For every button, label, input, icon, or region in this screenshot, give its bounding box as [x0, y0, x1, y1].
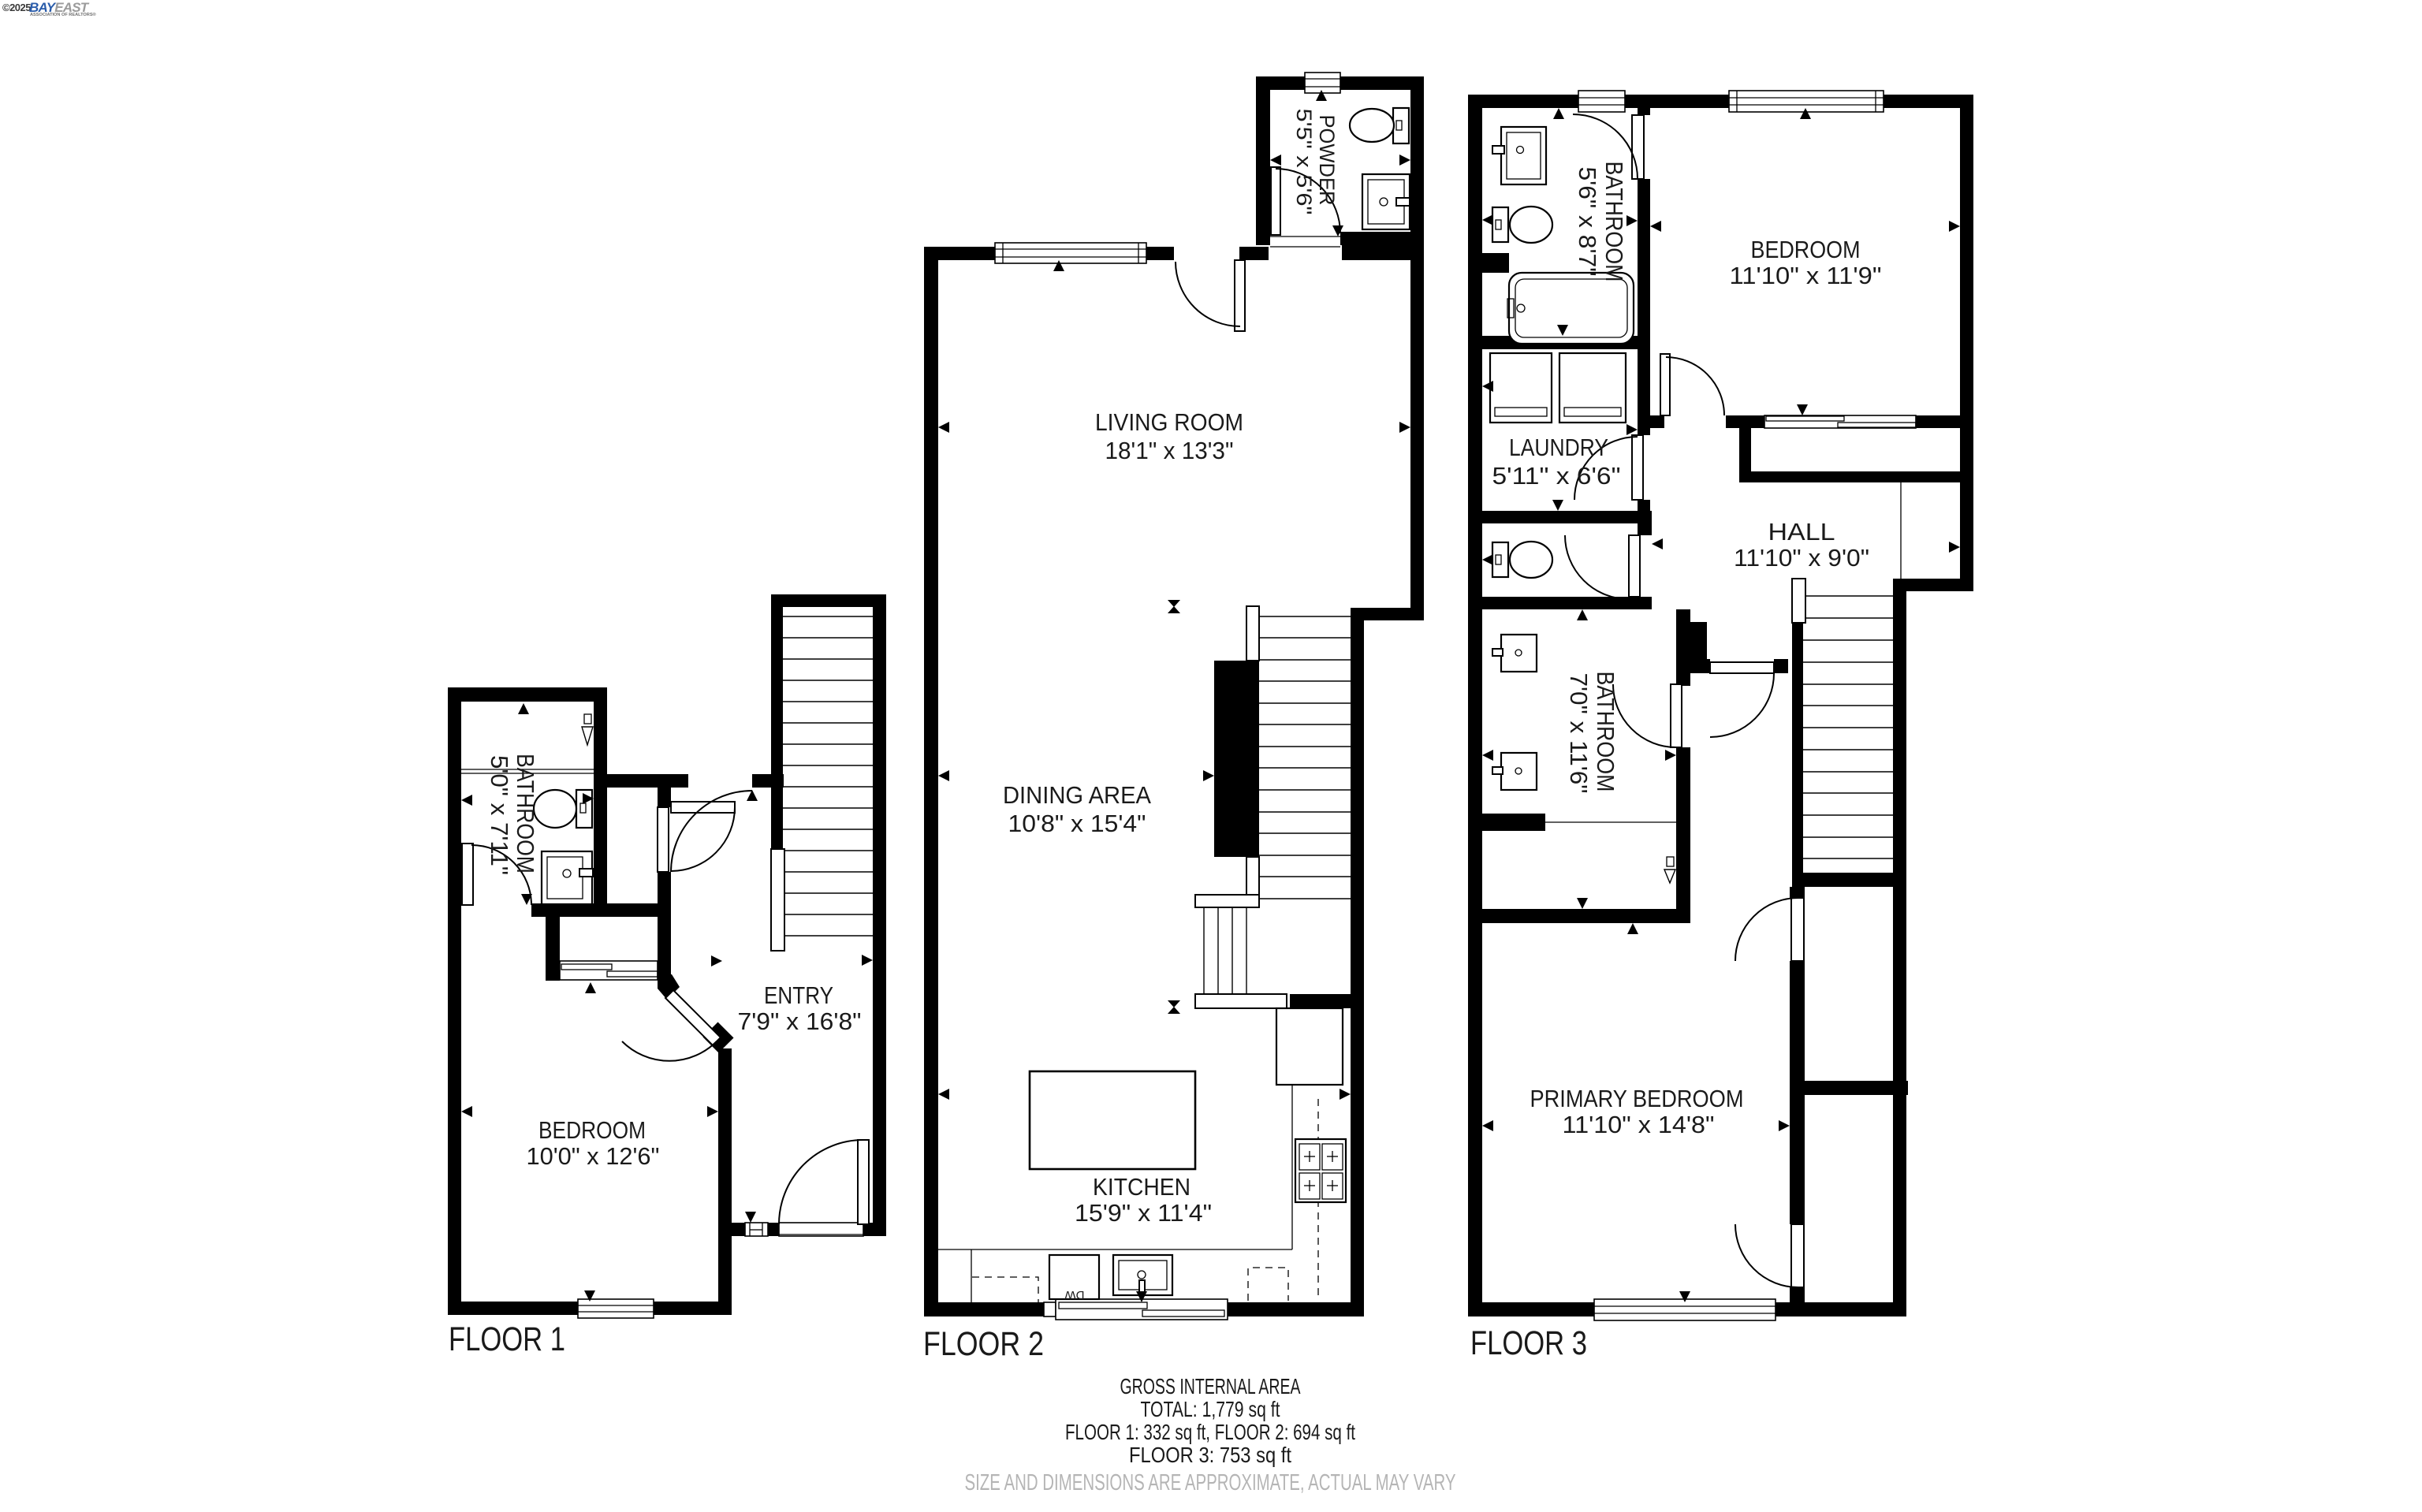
svg-text:LIVING ROOM: LIVING ROOM	[1095, 408, 1243, 436]
svg-text:KITCHEN: KITCHEN	[1093, 1173, 1191, 1201]
svg-text:FLOOR 3: 753 sq ft: FLOOR 3: 753 sq ft	[1129, 1443, 1291, 1467]
svg-text:DW: DW	[1064, 1288, 1085, 1302]
svg-text:11'10" x 9'0": 11'10" x 9'0"	[1734, 544, 1869, 572]
svg-text:7'0" x 11'6": 7'0" x 11'6"	[1565, 673, 1593, 794]
svg-text:BEDROOM: BEDROOM	[1751, 236, 1861, 263]
svg-text:BATHROOM: BATHROOM	[512, 754, 539, 873]
svg-text:HALL: HALL	[1768, 518, 1835, 546]
svg-text:©2025: ©2025	[2, 2, 31, 13]
svg-text:15'9" x 11'4": 15'9" x 11'4"	[1075, 1199, 1212, 1227]
svg-text:DINING AREA: DINING AREA	[1003, 781, 1151, 809]
svg-text:BATHROOM: BATHROOM	[1592, 672, 1619, 792]
svg-text:BEDROOM: BEDROOM	[538, 1116, 646, 1144]
svg-text:7'9" x 16'8": 7'9" x 16'8"	[738, 1007, 862, 1035]
svg-text:10'0" x 12'6": 10'0" x 12'6"	[527, 1142, 660, 1170]
svg-text:ENTRY: ENTRY	[764, 981, 833, 1009]
svg-text:BATHROOM: BATHROOM	[1600, 162, 1628, 282]
svg-text:18'1" x 13'3": 18'1" x 13'3"	[1105, 437, 1234, 464]
svg-text:5'0" x 7'11": 5'0" x 7'11"	[486, 755, 513, 875]
svg-text:FLOOR 3: FLOOR 3	[1470, 1324, 1587, 1362]
svg-text:FLOOR 1: 332 sq ft, FLOOR 2: 6: FLOOR 1: 332 sq ft, FLOOR 2: 694 sq ft	[1065, 1420, 1355, 1444]
svg-text:ASSOCIATION OF REALTORS®: ASSOCIATION OF REALTORS®	[30, 12, 97, 17]
svg-text:SIZE AND DIMENSIONS ARE APPROX: SIZE AND DIMENSIONS ARE APPROXIMATE, ACT…	[965, 1470, 1456, 1495]
svg-text:11'10" x 14'8": 11'10" x 14'8"	[1563, 1111, 1715, 1138]
svg-text:FLOOR 2: FLOOR 2	[923, 1325, 1044, 1363]
svg-text:FLOOR 1: FLOOR 1	[449, 1320, 565, 1358]
svg-text:11'10" x 11'9": 11'10" x 11'9"	[1730, 262, 1882, 289]
svg-text:10'8" x 15'4": 10'8" x 15'4"	[1008, 810, 1146, 837]
svg-text:TOTAL: 1,779 sq ft: TOTAL: 1,779 sq ft	[1141, 1397, 1280, 1421]
svg-text:LAUNDRY: LAUNDRY	[1509, 434, 1608, 461]
svg-text:5'5" x 5'6": 5'5" x 5'6"	[1292, 109, 1316, 215]
svg-text:5'11" x 6'6": 5'11" x 6'6"	[1492, 462, 1621, 490]
svg-text:GROSS INTERNAL AREA: GROSS INTERNAL AREA	[1120, 1374, 1301, 1398]
svg-text:5'6" x 8'7": 5'6" x 8'7"	[1574, 167, 1601, 277]
svg-text:POWDER: POWDER	[1315, 115, 1339, 206]
svg-text:PRIMARY BEDROOM: PRIMARY BEDROOM	[1530, 1085, 1744, 1112]
